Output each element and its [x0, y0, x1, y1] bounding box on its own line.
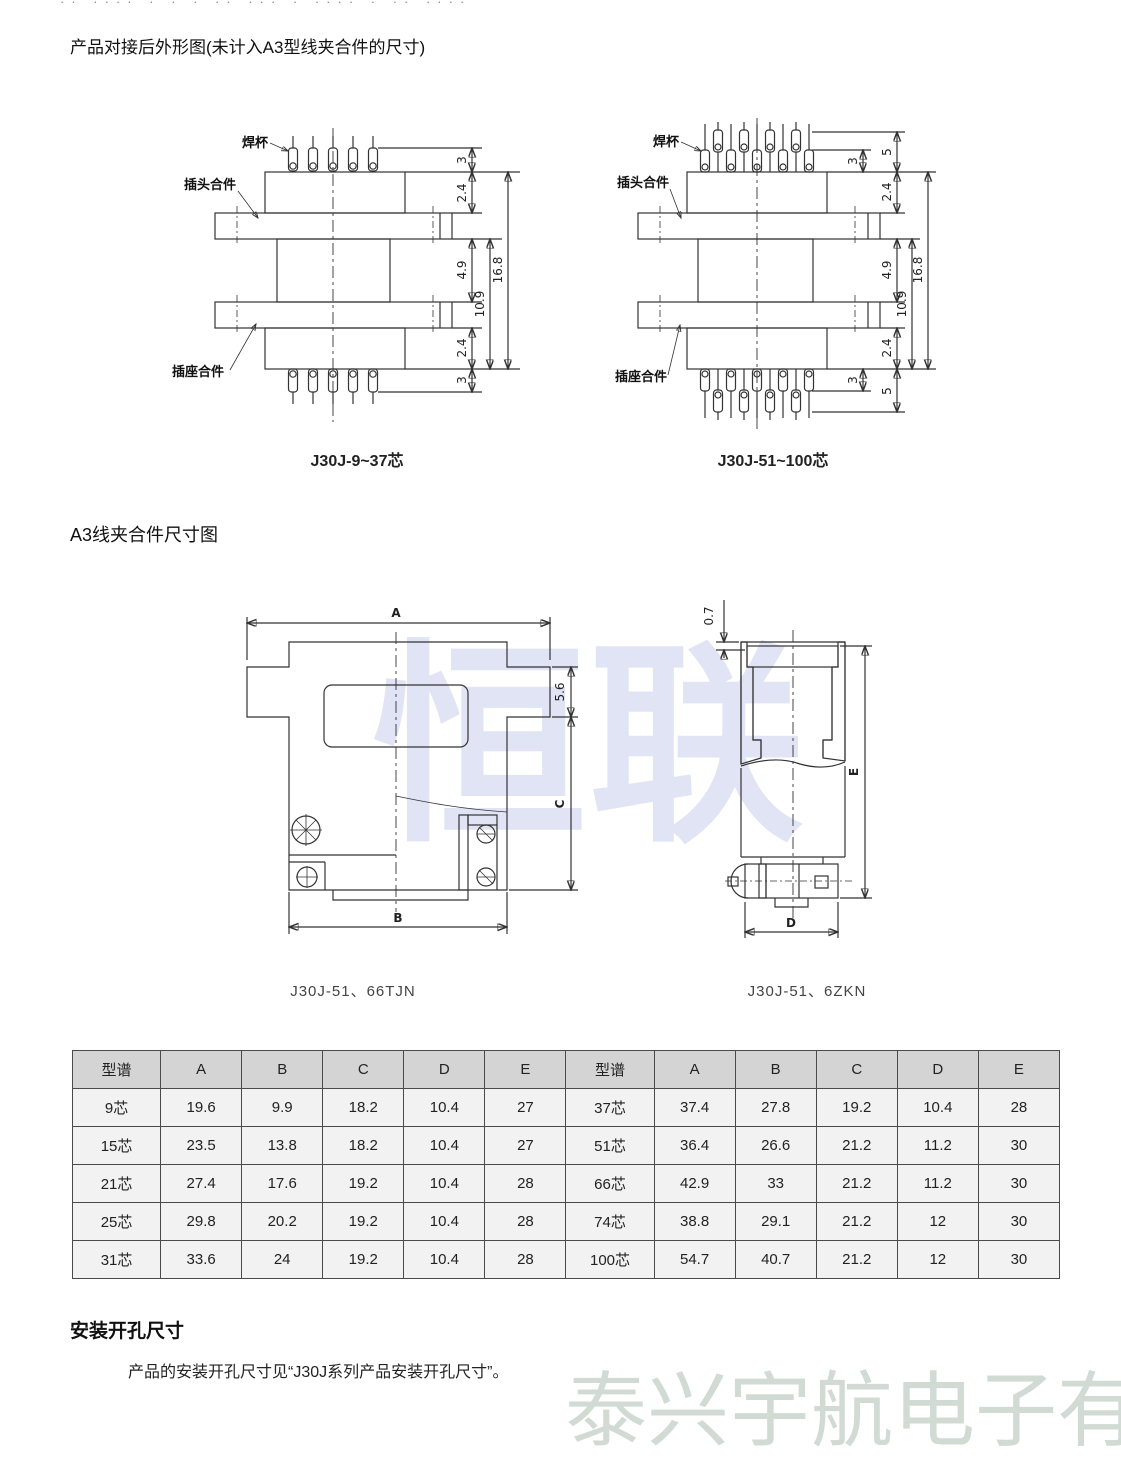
clamp-nut [747, 646, 838, 667]
table-cell: 18.2 [323, 1127, 404, 1165]
screw-hole-left [296, 866, 318, 888]
table-cell: 11.2 [897, 1127, 978, 1165]
dim-shell-top: 2.4 [880, 182, 894, 201]
table-cell: 10.4 [897, 1089, 978, 1127]
table-cell: 21芯 [73, 1165, 161, 1203]
dim-pin-top: 3 [455, 156, 469, 164]
table-cell: 66芯 [566, 1165, 654, 1203]
connector-body [638, 172, 880, 369]
col-header: 型谱 [73, 1051, 161, 1089]
drawing-mated-9-37: 3 2.4 4.9 2.4 3 10.9 16.8 焊杯 插头合件 插座合件 [150, 110, 570, 440]
col-header: E [978, 1051, 1059, 1089]
table-cell: 38.8 [654, 1203, 735, 1241]
label-plug-assembly: 插头合件 [617, 175, 669, 191]
solder-cups-top [701, 122, 814, 172]
table-cell: 30 [978, 1165, 1059, 1203]
dim-shell-top: 2.4 [455, 183, 469, 202]
section-title-outline: 产品对接后外形图(未计入A3型线夹合件的尺寸) [70, 33, 425, 58]
dimension-table: 型谱 A B C D E 型谱 A B C D E 9芯19.69.918.21… [72, 1050, 1060, 1279]
table-cell: 28 [978, 1089, 1059, 1127]
screw-hole-right-upper [477, 825, 495, 843]
table-cell: 10.4 [404, 1127, 485, 1165]
dim-shell-bottom: 2.4 [880, 338, 894, 357]
table-cell: 10.4 [404, 1241, 485, 1279]
col-header: B [242, 1051, 323, 1089]
clamp-bar [725, 857, 855, 907]
col-header: D [404, 1051, 485, 1089]
watermark-company: 泰兴宇航电子有限公司 [565, 1344, 1121, 1463]
section-title-mounting: 安装开孔尺寸 [70, 1316, 184, 1343]
dim-d: D [786, 916, 796, 930]
col-header: C [323, 1051, 404, 1089]
table-cell: 19.6 [161, 1089, 242, 1127]
section-hatch-right [823, 642, 845, 761]
table-cell: 27 [485, 1127, 566, 1165]
drawing-mated-51-100: 3 5 2.4 4.9 2.4 3 5 10.9 16.8 焊杯 插头合件 插座… [560, 110, 980, 440]
table-cell: 10.4 [404, 1089, 485, 1127]
table-cell: 27 [485, 1089, 566, 1127]
table-cell: 21.2 [816, 1203, 897, 1241]
table-cell: 30 [978, 1127, 1059, 1165]
table-cell: 15芯 [73, 1127, 161, 1165]
table-cell: 36.4 [654, 1127, 735, 1165]
clamp-outline [247, 642, 550, 890]
connector-body [215, 172, 452, 369]
table-row: 21芯27.417.619.210.42866芯42.93321.211.230 [73, 1165, 1060, 1203]
table-cell: 26.6 [735, 1127, 816, 1165]
table-cell: 9.9 [242, 1089, 323, 1127]
table-cell: 10.4 [404, 1203, 485, 1241]
col-header: A [654, 1051, 735, 1089]
dim-inner: 10.9 [895, 291, 909, 318]
table-row: 25芯29.820.219.210.42874芯38.829.121.21230 [73, 1203, 1060, 1241]
dim-shell-bottom: 2.4 [455, 338, 469, 357]
table-cell: 11.2 [897, 1165, 978, 1203]
label-solder-cup: 焊杯 [653, 134, 680, 150]
table-cell: 13.8 [242, 1127, 323, 1165]
table-cell: 25芯 [73, 1203, 161, 1241]
dim-c: C [553, 799, 567, 808]
table-cell: 31芯 [73, 1241, 161, 1279]
caption-clamp-side: J30J-51、6ZKN [712, 980, 902, 1001]
dim-a: A [391, 606, 401, 620]
drawing-clamp-front: A 5.6 C B [220, 590, 600, 950]
label-plug-assembly: 插头合件 [184, 177, 236, 193]
table-cell: 33 [735, 1165, 816, 1203]
dim-e: E [847, 768, 861, 776]
solder-cups-bottom [701, 369, 814, 420]
label-solder-cup: 焊杯 [242, 135, 269, 151]
table-cell: 30 [978, 1241, 1059, 1279]
table-cell: 12 [897, 1203, 978, 1241]
table-cell: 30 [978, 1203, 1059, 1241]
table-cell: 19.2 [816, 1089, 897, 1127]
col-header: C [816, 1051, 897, 1089]
col-header: 型谱 [566, 1051, 654, 1089]
table-cell: 27.4 [161, 1165, 242, 1203]
dim-pin-inner-bottom: 3 [846, 376, 860, 384]
table-cell: 19.2 [323, 1241, 404, 1279]
table-cell: 20.2 [242, 1203, 323, 1241]
table-row: 9芯19.69.918.210.42737芯37.427.819.210.428 [73, 1089, 1060, 1127]
table-cell: 28 [485, 1203, 566, 1241]
label-socket-assembly: 插座合件 [172, 364, 224, 380]
caption-clamp-front: J30J-51、66TJN [258, 980, 448, 1001]
table-cell: 12 [897, 1241, 978, 1279]
section-title-clamp: A3线夹合件尺寸图 [70, 521, 218, 547]
table-cell: 19.2 [323, 1165, 404, 1203]
dim-gap: 4.9 [880, 260, 894, 279]
dim-b: B [393, 911, 402, 925]
table-cell: 33.6 [161, 1241, 242, 1279]
table-cell: 28 [485, 1165, 566, 1203]
table-cell: 40.7 [735, 1241, 816, 1279]
table-cell: 17.6 [242, 1165, 323, 1203]
table-cell: 29.1 [735, 1203, 816, 1241]
table-cell: 37芯 [566, 1089, 654, 1127]
col-header: A [161, 1051, 242, 1089]
table-cell: 29.8 [161, 1203, 242, 1241]
dim-total: 16.8 [911, 257, 925, 284]
table-cell: 100芯 [566, 1241, 654, 1279]
table-cell: 74芯 [566, 1203, 654, 1241]
table-cell: 18.2 [323, 1089, 404, 1127]
table-cell: 54.7 [654, 1241, 735, 1279]
table-row: 15芯23.513.818.210.42751芯36.426.621.211.2… [73, 1127, 1060, 1165]
dim-pin-outer-top: 5 [880, 148, 894, 156]
col-header: D [897, 1051, 978, 1089]
col-header: E [485, 1051, 566, 1089]
table-cell: 23.5 [161, 1127, 242, 1165]
section-hatch-left [741, 642, 761, 764]
dim-total: 16.8 [491, 257, 505, 284]
table-cell: 19.2 [323, 1203, 404, 1241]
col-header: B [735, 1051, 816, 1089]
table-header-row: 型谱 A B C D E 型谱 A B C D E [73, 1051, 1060, 1089]
dim-pin-inner-top: 3 [846, 157, 860, 165]
dimension-lines [247, 617, 578, 934]
drawing-clamp-side: 0.7 E D [680, 580, 960, 960]
table-cell: 21.2 [816, 1165, 897, 1203]
dim-step: 5.6 [553, 682, 567, 701]
table-cell: 21.2 [816, 1127, 897, 1165]
table-cell: 24 [242, 1241, 323, 1279]
caption-drawing-9-37: J30J-9~37芯 [262, 447, 452, 471]
screw-hole-large [290, 814, 322, 846]
dim-pin-outer-bottom: 5 [880, 387, 894, 395]
mounting-body-text: 产品的安装开孔尺寸见“J30J系列产品安装开孔尺寸”。 [128, 1358, 508, 1382]
table-cell: 37.4 [654, 1089, 735, 1127]
table-cell: 27.8 [735, 1089, 816, 1127]
table-cell: 51芯 [566, 1127, 654, 1165]
table-cell: 28 [485, 1241, 566, 1279]
table-cell: 42.9 [654, 1165, 735, 1203]
top-clipped-row: ·· ···· · · · ·· ··· · ···· · ·· ···· [60, 0, 1070, 9]
screw-hole-right-lower [477, 868, 495, 886]
table-row: 31芯33.62419.210.428100芯54.740.721.21230 [73, 1241, 1060, 1279]
dim-lip: 0.7 [702, 606, 716, 625]
dim-inner: 10.9 [473, 291, 487, 318]
caption-drawing-51-100: J30J-51~100芯 [678, 447, 868, 471]
dim-pin-bottom: 3 [455, 376, 469, 384]
label-socket-assembly: 插座合件 [615, 369, 667, 385]
datasheet-page: { "page": { "top_clipped_text": "·· ····… [0, 0, 1121, 1424]
dim-gap: 4.9 [455, 260, 469, 279]
table-cell: 10.4 [404, 1165, 485, 1203]
table-cell: 21.2 [816, 1241, 897, 1279]
table-cell: 9芯 [73, 1089, 161, 1127]
